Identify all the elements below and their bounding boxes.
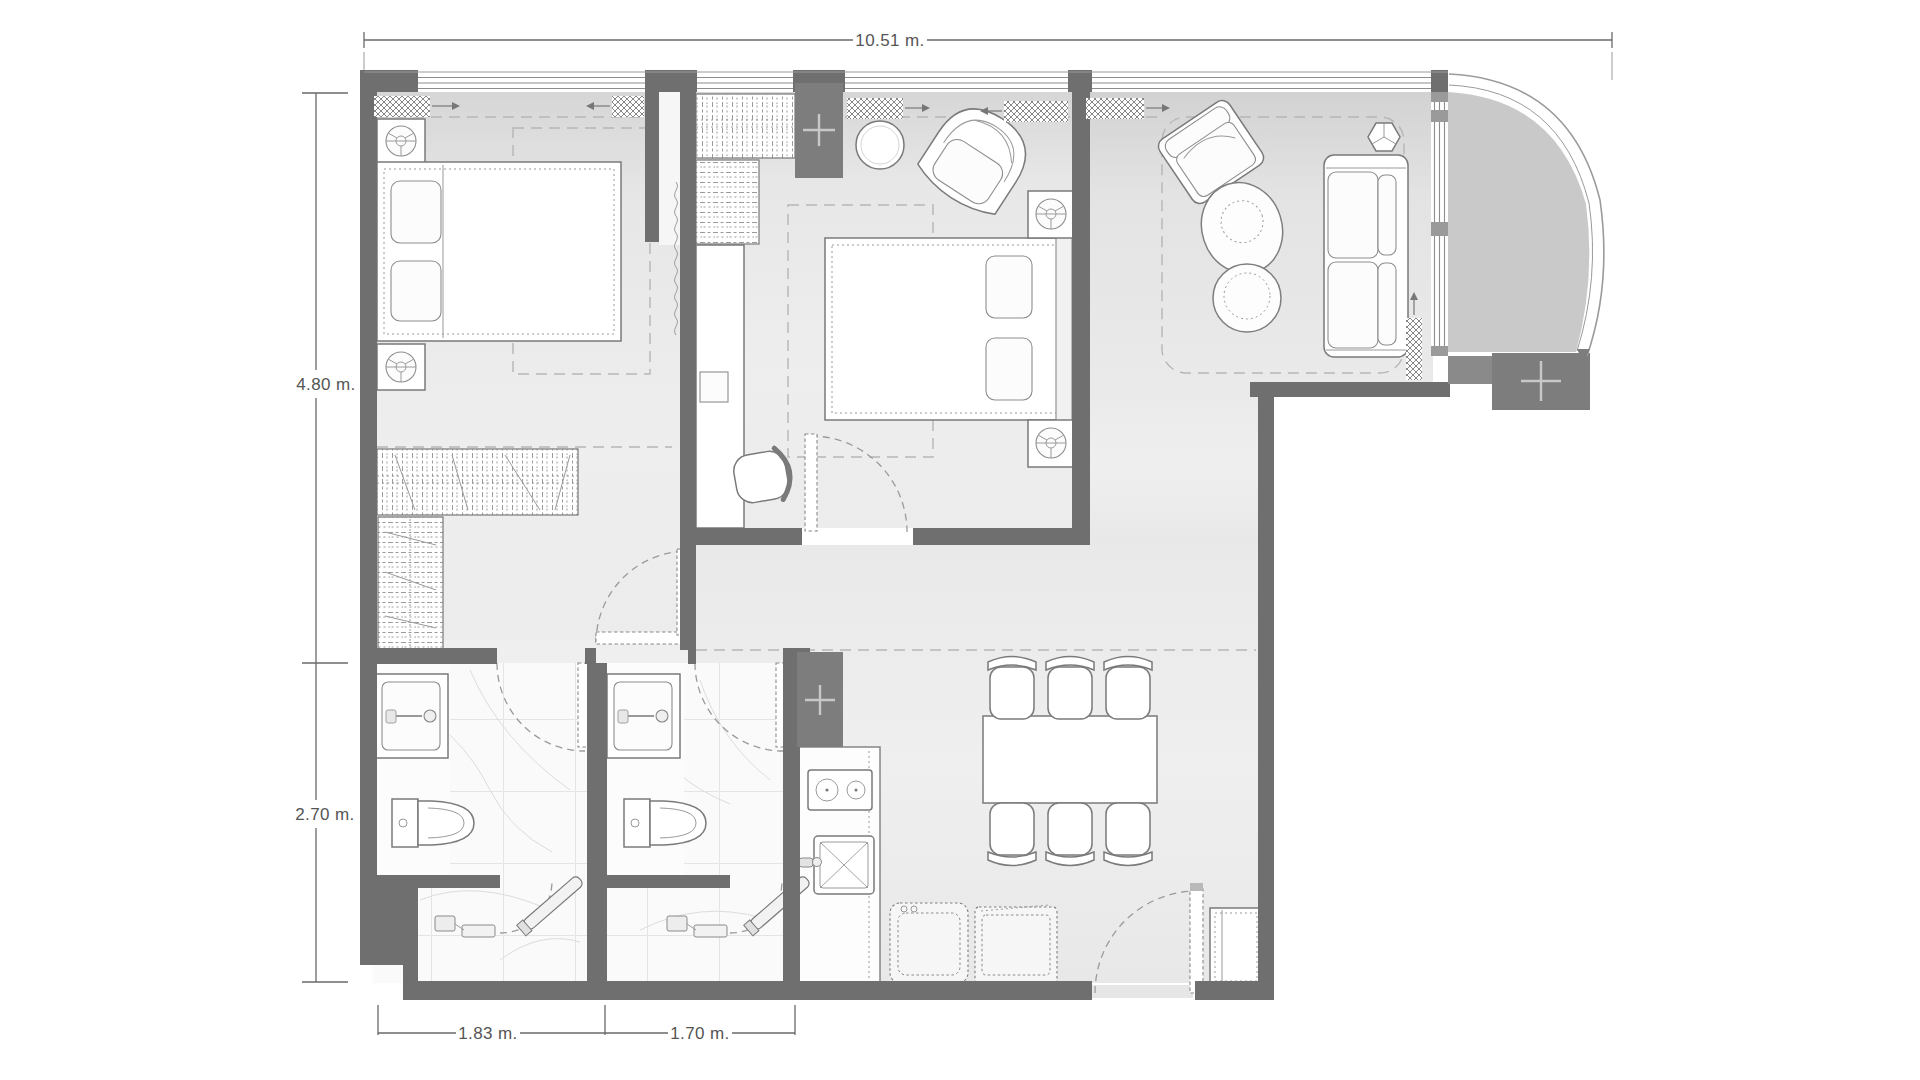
- glass-wall-balcony: [1431, 92, 1448, 356]
- stove-icon: [808, 770, 872, 810]
- dimension-bottom: 1.83 m. 1.70 m.: [378, 1005, 795, 1043]
- master-dresser: [696, 160, 759, 244]
- wall-pier: [645, 70, 697, 92]
- wall-master-south: [913, 528, 1090, 545]
- wall-jamb: [585, 648, 596, 664]
- living-side-table: [1368, 123, 1400, 151]
- appliance-cabinet: [975, 905, 1057, 983]
- kitchen: [797, 747, 880, 983]
- bathroom1-vanity: [375, 674, 448, 758]
- wall-shower-stub: [607, 875, 730, 888]
- washing-machine: [890, 903, 968, 983]
- master-closet: [696, 94, 795, 158]
- wall-shower-stub: [373, 875, 500, 888]
- wall-bottom: [403, 981, 1092, 1000]
- headboard: [1056, 234, 1072, 424]
- bathroom2-vanity: [607, 674, 680, 758]
- dining-table: [983, 716, 1157, 803]
- pillow: [986, 338, 1032, 400]
- living-pouf-small: [1213, 264, 1281, 332]
- sofa-seat: [1328, 172, 1378, 258]
- entrance-door-leaf: [1190, 889, 1203, 993]
- wall-master-east: [1072, 92, 1090, 545]
- faucet-icon: [656, 710, 668, 722]
- sofa-back-cushion: [1378, 175, 1396, 255]
- bedroom2-lamp-top-icon: [386, 126, 416, 156]
- bathroom2-toilet: [624, 799, 706, 847]
- sofa-seat: [1328, 262, 1378, 348]
- wall-bedroom2-east: [680, 92, 696, 650]
- master-bed: [825, 234, 1072, 424]
- dimension-label-bottom-right: 1.70 m.: [670, 1024, 730, 1043]
- hand-shower-icon: [667, 916, 687, 931]
- faucet-icon: [424, 710, 436, 722]
- pillow: [986, 256, 1032, 318]
- window-master: [845, 74, 1068, 92]
- master-stool: [856, 121, 904, 169]
- pillow: [391, 261, 441, 321]
- wall-pier: [1431, 70, 1448, 92]
- entry-cabinet: [1210, 908, 1262, 986]
- bathroom1-toilet: [392, 799, 474, 847]
- console-tv: [700, 372, 728, 402]
- wall-right-lower: [1258, 382, 1274, 1000]
- entrance-threshold: [1092, 985, 1193, 998]
- pillow: [391, 181, 441, 243]
- dimension-left: 4.80 m. 2.70 m.: [295, 93, 356, 982]
- shaft-top: [795, 83, 843, 178]
- wall-bath-top: [360, 648, 497, 664]
- dimension-label-left-lower: 2.70 m.: [295, 805, 355, 824]
- dimension-top: 10.51 m.: [364, 31, 1612, 80]
- wall-living-bottom: [1250, 382, 1450, 397]
- bedroom2-dresser: [378, 517, 443, 651]
- window-bedroom2: [418, 74, 645, 92]
- living-sofa: [1324, 155, 1408, 357]
- wall-bath-divider: [587, 663, 607, 983]
- bedroom2-lamp-bottom-icon: [386, 352, 416, 382]
- floor-plan-canvas: 10.51 m. 4.80 m. 2.70 m. 1.83 m. 1.70 m.: [0, 0, 1920, 1080]
- floor-plan-page: 10.51 m. 4.80 m. 2.70 m. 1.83 m. 1.70 m.: [0, 0, 1920, 1080]
- wall-closet-back: [645, 92, 659, 242]
- bedroom2-wardrobe: [377, 449, 578, 515]
- balcony-ledge: [1448, 353, 1590, 410]
- dimension-label-left-upper: 4.80 m.: [296, 375, 356, 394]
- hand-shower-icon: [435, 916, 455, 931]
- master-lamp-top-icon: [1036, 199, 1066, 229]
- dimension-label-bottom-left: 1.83 m.: [458, 1024, 518, 1043]
- door-hinge: [1190, 883, 1203, 891]
- wall-pier: [1068, 70, 1092, 92]
- sofa-back-cushion: [1378, 263, 1396, 345]
- wall-master-south: [680, 528, 802, 545]
- foyer-floor: [1090, 382, 1258, 545]
- dimension-label-top: 10.51 m.: [855, 31, 924, 50]
- wall-corner-block: [360, 877, 418, 965]
- bedroom2-bed: [377, 162, 621, 341]
- wall-left: [360, 70, 377, 880]
- master-lamp-bottom-icon: [1036, 428, 1066, 458]
- window-living: [1092, 74, 1431, 92]
- window-closet: [697, 74, 793, 92]
- shaft-kitchen: [797, 652, 843, 747]
- wall-jamb: [688, 648, 696, 664]
